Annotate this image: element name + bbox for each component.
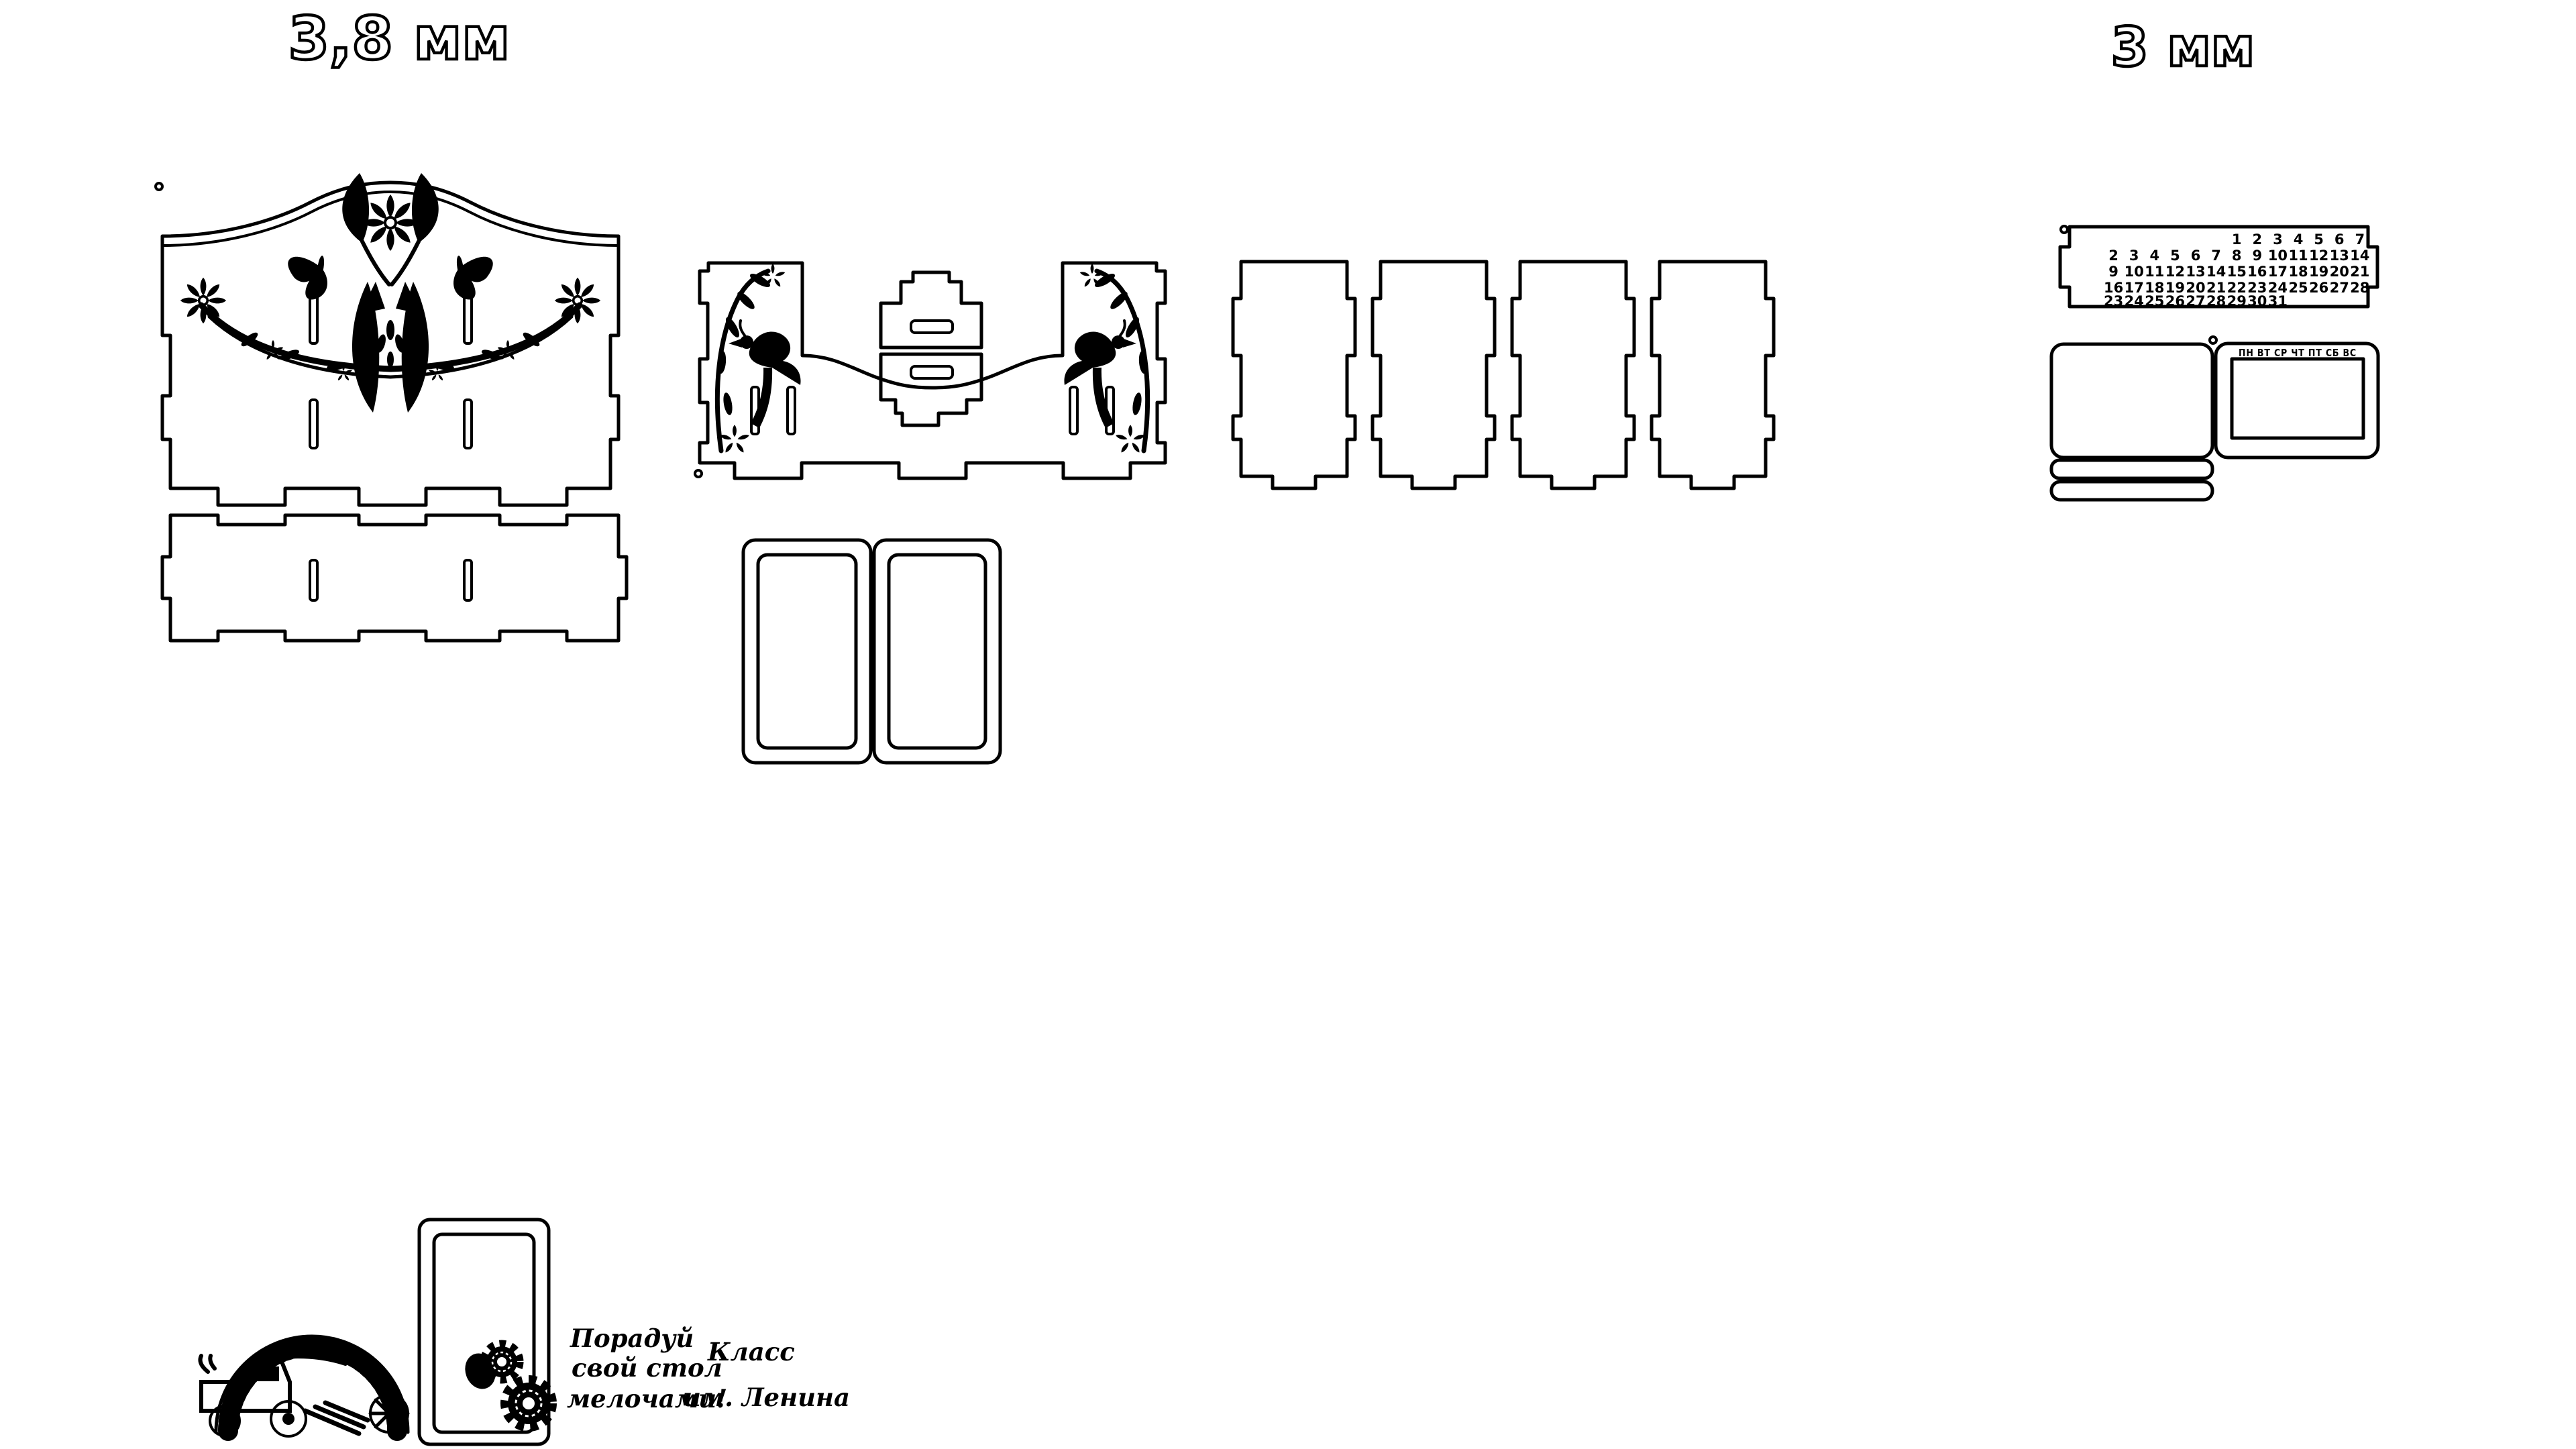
calendar-number: 26 <box>2165 293 2185 309</box>
slot-cutout <box>911 321 953 333</box>
weekday-header: ПН ВТ СР ЧТ ПТ СБ ВС <box>2239 347 2357 359</box>
calendar-number: 14 <box>2206 264 2226 280</box>
calendar-number: 30 <box>2247 293 2267 309</box>
gift-tag-panel <box>419 1220 551 1444</box>
slot-cutout <box>310 295 317 343</box>
calendar-number: 8 <box>2232 248 2242 264</box>
calendar-number: 20 <box>2330 264 2349 280</box>
calendar-number: 13 <box>2330 248 2349 264</box>
calendar-number: 17 <box>2268 264 2288 280</box>
calendar-number: 10 <box>2268 248 2288 264</box>
calendar-number: 14 <box>2350 248 2369 264</box>
divider-panels <box>1233 262 1774 488</box>
calendar-number: 19 <box>2309 264 2328 280</box>
calendar-number: 4 <box>2294 231 2304 248</box>
calendar-number: 23 <box>2104 293 2123 309</box>
calendar-number: 9 <box>2108 264 2118 280</box>
slot-cutout <box>788 387 795 434</box>
calendar-number: 13 <box>2186 264 2205 280</box>
calendar-number: 12 <box>2165 264 2185 280</box>
calendar-strip-rail <box>2051 482 2212 500</box>
start-point-dot <box>2061 226 2068 233</box>
slot-cutout <box>1070 387 1077 434</box>
calendar-number: 26 <box>2309 280 2328 296</box>
calendar-number: 28 <box>2350 280 2369 296</box>
calendar-back-plate <box>2051 344 2212 458</box>
organizer-front-panel <box>700 263 1165 478</box>
calendar-number: 31 <box>2268 293 2288 309</box>
calendar-number: 6 <box>2334 231 2345 248</box>
floral-engraving <box>180 173 600 413</box>
slot-cutout <box>464 560 472 600</box>
sheet-thickness-label-left: 3,8 мм <box>288 4 510 73</box>
calendar-number: 5 <box>2170 248 2180 264</box>
organizer-back-panel <box>162 173 619 505</box>
calendar-window-plate: ПН ВТ СР ЧТ ПТ СБ ВС <box>2216 343 2378 458</box>
slot-cutout <box>310 400 317 448</box>
laser-cutting-layout-canvas: 3,8 мм 3 мм <box>0 0 2576 1449</box>
phone-stand-bracket-upper <box>881 272 981 347</box>
calendar-number: 1 <box>2232 231 2242 248</box>
calendar-number: 21 <box>2350 264 2369 280</box>
calendar-number: 11 <box>2145 264 2164 280</box>
calendar-number: 9 <box>2252 248 2262 264</box>
calendar-number: 3 <box>2129 248 2139 264</box>
calendar-number: 25 <box>2288 280 2308 296</box>
divider-panel <box>1373 262 1495 488</box>
calendar-body-parts: ПН ВТ СР ЧТ ПТ СБ ВС <box>2051 343 2378 500</box>
calendar-number: 29 <box>2227 293 2247 309</box>
start-point-dot <box>695 470 702 477</box>
calendar-number: 16 <box>2247 264 2267 280</box>
calendar-number: 12 <box>2309 248 2328 264</box>
calendar-number: 6 <box>2191 248 2201 264</box>
slogan-line-1: Порадуй <box>570 1324 694 1353</box>
divider-panel <box>1652 262 1774 488</box>
phone-stand-bracket-lower <box>881 354 981 425</box>
calendar-number: 18 <box>2288 264 2308 280</box>
calendar-number-strip: 1234567234567891011121314910111213141516… <box>2060 227 2377 309</box>
calendar-number: 27 <box>2186 293 2205 309</box>
slot-cutout <box>464 400 472 448</box>
calendar-number: 4 <box>2149 248 2159 264</box>
calendar-number: 7 <box>2211 248 2221 264</box>
slot-cutout <box>310 560 317 600</box>
dedication-line-1: Класс <box>707 1337 795 1366</box>
calendar-number: 11 <box>2288 248 2308 264</box>
slogan-line-2: свой стол <box>572 1353 722 1383</box>
gears-engraving <box>460 1344 551 1426</box>
calendar-number: 27 <box>2330 280 2349 296</box>
calendar-number: 25 <box>2145 293 2164 309</box>
calendar-strip-rail <box>2051 460 2212 478</box>
calendar-number: 2 <box>2252 231 2262 248</box>
dedication-line-2: им. Ленина <box>683 1383 850 1412</box>
start-point-dot <box>156 183 162 190</box>
center-flower-engraving <box>362 195 419 251</box>
hanging-leaves-engraving <box>374 320 406 368</box>
calendar-number: 7 <box>2355 231 2365 248</box>
calendar-number: 10 <box>2125 264 2144 280</box>
divider-panel <box>1512 262 1634 488</box>
slot-cutout <box>911 366 953 378</box>
combine-harvester-engraving <box>200 1336 408 1436</box>
calendar-number: 3 <box>2273 231 2283 248</box>
start-point-dot <box>2210 337 2216 343</box>
calendar-numbers: 1234567234567891011121314910111213141516… <box>2104 231 2369 309</box>
calendar-number: 5 <box>2314 231 2324 248</box>
slot-cutout <box>464 295 472 343</box>
calendar-number: 15 <box>2227 264 2247 280</box>
sheet-thickness-label-right: 3 мм <box>2111 16 2255 78</box>
calendar-number: 2 <box>2108 248 2118 264</box>
calendar-number: 28 <box>2206 293 2226 309</box>
organizer-base-panel <box>162 515 627 641</box>
phone-holder-frames <box>743 540 1000 763</box>
calendar-number: 24 <box>2125 293 2144 309</box>
